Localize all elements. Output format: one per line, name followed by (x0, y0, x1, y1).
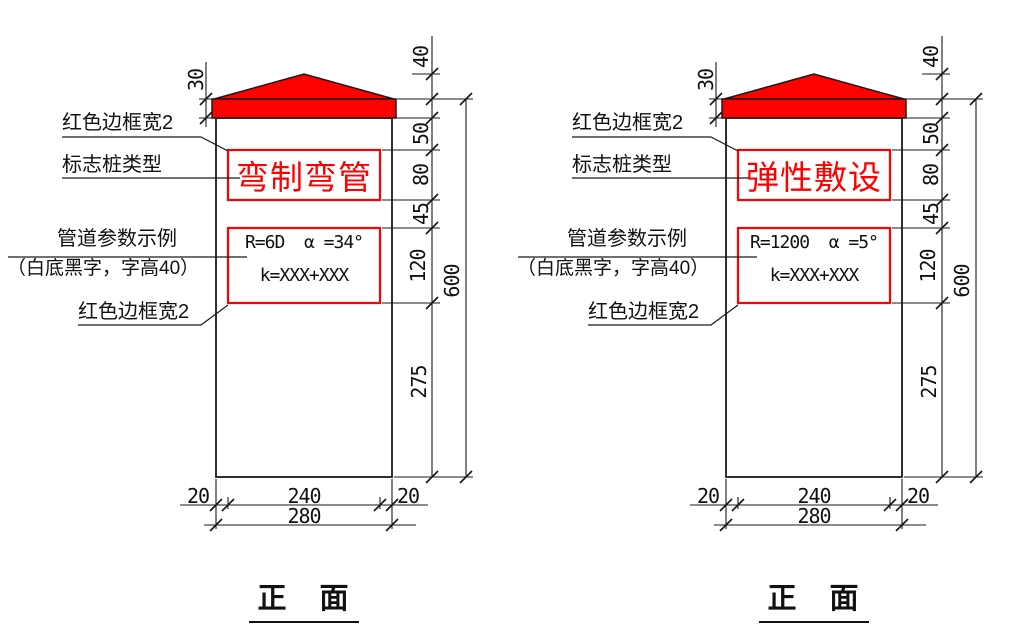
dim-cap-height: 40 (922, 37, 940, 77)
post-geometry (0, 0, 500, 638)
technical-drawing: 30 40 50 80 45 120 275 600 20 240 20 280… (0, 0, 1011, 638)
post-geometry (510, 0, 1010, 638)
dim-band-height: 30 (697, 60, 715, 100)
marker-post-diagram-elastic-laying: 30 40 50 80 45 120 275 600 20 240 20 280… (510, 0, 1010, 638)
callout-post-type: 标志桩类型 (572, 154, 672, 176)
dim-gap-top: 50 (412, 114, 430, 154)
callout-pipe-params-note: （白底黑字，字高40） (7, 258, 199, 280)
dim-box-width: 240 (274, 488, 334, 504)
param-line1-text: R=6D α =34° (228, 231, 380, 253)
dim-total-width: 280 (274, 508, 334, 524)
param-line2-text: k=XXX+XXX (228, 264, 380, 286)
callout-pipe-params-note: （白底黑字，字高40） (517, 258, 709, 280)
dim-type-box-h: 80 (412, 155, 430, 195)
dim-margin-left: 20 (178, 488, 218, 504)
view-title-text: 正 面 (249, 575, 358, 623)
cap-band (212, 99, 396, 118)
param-line2-text: k=XXX+XXX (738, 264, 890, 286)
dim-gap-middle: 45 (922, 194, 940, 234)
dim-cap-height: 40 (412, 37, 430, 77)
post-type-text: 弹性敷设 (738, 151, 890, 199)
callout-pipe-params: 管道参数示例 (567, 228, 687, 250)
dim-total-width: 280 (784, 508, 844, 524)
dim-lower-height: 275 (920, 358, 938, 406)
callout-pipe-params: 管道参数示例 (57, 228, 177, 250)
view-title: 正 面 (214, 575, 394, 623)
dim-total-height: 600 (953, 255, 971, 307)
callout-red-border-bottom: 红色边框宽2 (78, 301, 189, 323)
callout-red-border-top: 红色边框宽2 (572, 112, 683, 134)
view-title: 正 面 (724, 575, 904, 623)
dim-type-box-h: 80 (922, 155, 940, 195)
cap-triangle (214, 74, 394, 99)
param-line1-text: R=1200 α =5° (738, 231, 890, 253)
dim-box-width: 240 (784, 488, 844, 504)
dim-margin-right: 20 (388, 488, 428, 504)
callout-post-type: 标志桩类型 (62, 154, 162, 176)
dim-margin-left: 20 (688, 488, 728, 504)
post-type-text: 弯制弯管 (228, 151, 380, 199)
dim-gap-middle: 45 (412, 194, 430, 234)
dim-margin-right: 20 (898, 488, 938, 504)
view-title-text: 正 面 (759, 575, 868, 623)
callout-red-border-top: 红色边框宽2 (62, 112, 173, 134)
dim-gap-top: 50 (922, 114, 940, 154)
callout-red-border-bottom: 红色边框宽2 (588, 301, 699, 323)
dim-lower-height: 275 (410, 358, 428, 406)
dim-total-height: 600 (443, 255, 461, 307)
dim-param-box-h: 120 (409, 242, 427, 290)
dim-param-box-h: 120 (919, 242, 937, 290)
marker-post-diagram-bent-pipe: 30 40 50 80 45 120 275 600 20 240 20 280… (0, 0, 500, 638)
dim-band-height: 30 (187, 60, 205, 100)
